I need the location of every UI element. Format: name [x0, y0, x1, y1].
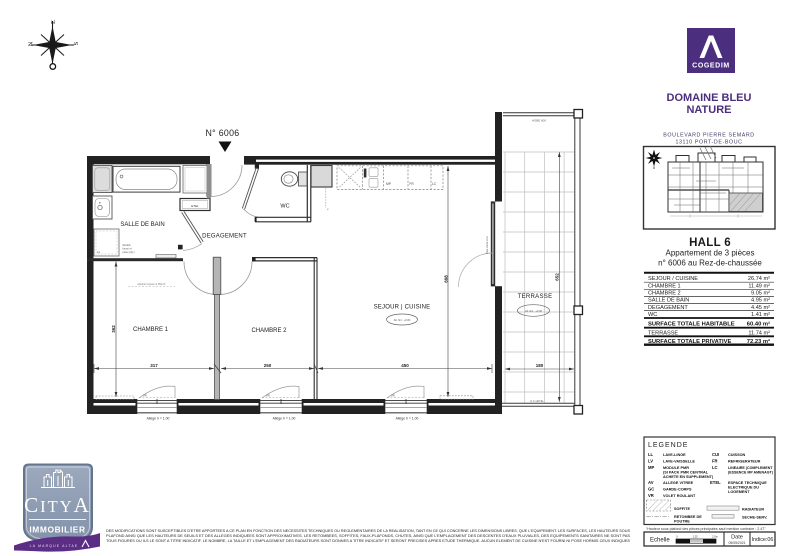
svg-text:ETEL: ETEL — [710, 480, 721, 485]
svg-text:11.49 m²: 11.49 m² — [748, 284, 770, 290]
svg-text:LL: LL — [648, 452, 654, 457]
svg-text:LOGEMENT: LOGEMENT — [728, 490, 750, 494]
svg-text:Allège h = 1.00: Allège h = 1.00 — [396, 417, 419, 421]
svg-text:LL: LL — [97, 250, 101, 254]
svg-text:GARDE-CORPS: GARDE-CORPS — [663, 488, 692, 492]
svg-text:LEGENDE: LEGENDE — [648, 442, 688, 449]
svg-text:DEGAGEMENT: DEGAGEMENT — [648, 305, 688, 311]
svg-text:SALLE DE BAIN: SALLE DE BAIN — [648, 298, 689, 304]
svg-text:MP: MP — [648, 465, 654, 470]
svg-text:Meuble: Meuble — [123, 244, 132, 247]
svg-text:VR: VR — [391, 394, 395, 398]
svg-text:N° 6006: N° 6006 — [206, 128, 240, 138]
svg-text:Meuble imposé si Plan lit: Meuble imposé si Plan lit — [138, 283, 166, 286]
svg-text:VR: VR — [266, 394, 270, 398]
svg-text:RETOMBEE DE: RETOMBEE DE — [674, 515, 702, 519]
svg-text:IMMOBILIER: IMMOBILIER — [29, 525, 85, 535]
svg-text:05/05/2021: 05/05/2021 — [729, 541, 746, 545]
svg-text:ESPACE TECHNIQUE: ESPACE TECHNIQUE — [728, 481, 767, 485]
svg-text:HSBE 600: HSBE 600 — [532, 119, 546, 123]
svg-text:REFRIGERATEUR: REFRIGERATEUR — [728, 460, 761, 464]
svg-text:PLAFOND AINSI QUE LES HAUTEURS: PLAFOND AINSI QUE LES HAUTEURS DE SEUILS… — [106, 534, 630, 538]
svg-text:SECHE-SERV.: SECHE-SERV. — [742, 516, 767, 520]
svg-text:Baie vitrée 2vtx: Baie vitrée 2vtx — [485, 235, 489, 253]
svg-text:VR: VR — [143, 394, 147, 398]
svg-text:317: 317 — [150, 363, 158, 368]
svg-text:(SI PACK PMR CENTRAL: (SI PACK PMR CENTRAL — [663, 471, 709, 475]
svg-text:“Hauteur sous plafond des pièc: “Hauteur sous plafond des pièces princip… — [646, 527, 766, 531]
svg-text:ELECTRIQUE DU: ELECTRIQUE DU — [728, 486, 759, 490]
svg-text:LC: LC — [712, 465, 718, 470]
svg-text:1.41 m²: 1.41 m² — [751, 312, 770, 318]
svg-text:CUI: CUI — [712, 452, 719, 457]
svg-text:TOUS FIGURES OU ILS LE SONT A: TOUS FIGURES OU ILS LE SONT A TITRE INDI… — [106, 539, 630, 543]
svg-text:1.25: 1.25 — [692, 535, 698, 539]
svg-text:CHAMBRE 1: CHAMBRE 1 — [133, 327, 169, 333]
svg-text:DES MODIFICATIONS SONT SUSCEPT: DES MODIFICATIONS SONT SUSCEPTIBLES D'ET… — [106, 529, 630, 533]
svg-text:DOMAINE BLEU: DOMAINE BLEU — [667, 92, 752, 104]
svg-text:HALL 6: HALL 6 — [689, 237, 731, 249]
svg-text:SOFFITE: SOFFITE — [674, 507, 690, 511]
svg-text:CITYA: CITYA — [24, 493, 91, 517]
svg-text:COGEDIM: COGEDIM — [692, 63, 730, 70]
svg-text:SURFACE TOTALE HABITABLE: SURFACE TOTALE HABITABLE — [648, 322, 735, 328]
svg-text:NATURE: NATURE — [686, 104, 731, 116]
svg-text:9.05 m²: 9.05 m² — [751, 291, 770, 297]
svg-text:LV: LV — [648, 459, 653, 464]
svg-text:posé (opt.): posé (opt.) — [123, 251, 135, 254]
svg-text:CUISSON: CUISSON — [728, 453, 746, 457]
svg-text:n° 6006 au Rez-de-chaussée: n° 6006 au Rez-de-chaussée — [658, 259, 762, 268]
svg-text:GC: GC — [648, 487, 654, 492]
svg-text:652: 652 — [554, 273, 559, 281]
svg-text:4.95 m²: 4.95 m² — [751, 298, 770, 304]
svg-text:Echelle: Echelle — [650, 538, 670, 544]
svg-text:SEJOUR | CUISINE: SEJOUR | CUISINE — [374, 305, 431, 311]
svg-text:MODULE PMR: MODULE PMR — [663, 466, 689, 470]
svg-text:LINEAIRE (COMPLEMENT: LINEAIRE (COMPLEMENT — [728, 466, 773, 470]
svg-text:FR: FR — [409, 182, 414, 186]
svg-text:Allège h = 1.00: Allège h = 1.00 — [273, 417, 296, 421]
svg-text:TERRASSE: TERRASSE — [648, 331, 678, 337]
svg-text:ALLEGE VITREE: ALLEGE VITREE — [663, 481, 694, 485]
svg-text:WC: WC — [648, 312, 657, 318]
svg-text:VR: VR — [648, 493, 654, 498]
svg-text:AV: AV — [648, 480, 654, 485]
svg-text:Alt. fini : +0.00: Alt. fini : +0.00 — [394, 318, 411, 322]
svg-text:Allège h = 1.00: Allège h = 1.00 — [147, 417, 170, 421]
svg-text:LAVE-VAISSELLE: LAVE-VAISSELLE — [663, 460, 695, 464]
svg-text:CHAMBRE 2: CHAMBRE 2 — [648, 291, 681, 297]
svg-text:FR: FR — [712, 459, 718, 464]
svg-text:WC: WC — [280, 204, 289, 210]
svg-text:CHAMBRE 1: CHAMBRE 1 — [648, 284, 681, 290]
svg-text:(ESSENCE MP AMENAGT): (ESSENCE MP AMENAGT) — [728, 471, 774, 475]
svg-text:Indice:06: Indice:06 — [752, 537, 774, 543]
svg-text:26.74 m²: 26.74 m² — [748, 276, 770, 282]
svg-text:SEJOUR / CUISINE: SEJOUR / CUISINE — [648, 276, 698, 282]
svg-text:608: 608 — [444, 275, 449, 283]
svg-text:Date: Date — [731, 535, 743, 541]
svg-text:180: 180 — [536, 363, 544, 368]
svg-text:13110 PORT-DE-BOUC: 13110 PORT-DE-BOUC — [675, 140, 742, 146]
svg-text:N: N — [28, 41, 35, 46]
svg-text:250: 250 — [264, 363, 272, 368]
svg-text:4.45 m²: 4.45 m² — [751, 305, 770, 311]
svg-text:MP: MP — [386, 182, 391, 186]
svg-text:Appartement de 3 pièces: Appartement de 3 pièces — [666, 249, 755, 258]
svg-text:BOULEVARD PIERRE SEMARD: BOULEVARD PIERRE SEMARD — [663, 133, 754, 139]
svg-text:LAVE-LINGE: LAVE-LINGE — [663, 453, 686, 457]
svg-text:VOLET ROULANT: VOLET ROULANT — [663, 494, 696, 498]
svg-text:2.5m: 2.5m — [712, 535, 718, 539]
svg-text:DEGAGEMENT: DEGAGEMENT — [202, 234, 247, 240]
svg-text:G.C s/ETEL: G.C s/ETEL — [530, 399, 544, 403]
svg-text:72.23 m²: 72.23 m² — [747, 338, 770, 345]
svg-text:CHAMBRE 2: CHAMBRE 2 — [251, 328, 287, 334]
svg-text:POUTRE: POUTRE — [674, 520, 690, 524]
svg-text:RADIATEUR: RADIATEUR — [742, 508, 764, 512]
svg-text:fourni et: fourni et — [123, 248, 132, 251]
svg-text:S: S — [73, 41, 80, 45]
svg-text:SALLE DE BAIN: SALLE DE BAIN — [120, 222, 164, 228]
svg-text:450: 450 — [401, 363, 409, 368]
svg-text:362: 362 — [111, 325, 116, 333]
svg-text:11.74 m²: 11.74 m² — [748, 331, 770, 337]
svg-text:Alt. Ext : +0.00: Alt. Ext : +0.00 — [525, 309, 542, 313]
svg-text:LC: LC — [432, 182, 437, 186]
svg-text:E: E — [50, 20, 57, 24]
svg-text:SURFACE TOTALE PRIVATIVE: SURFACE TOTALE PRIVATIVE — [648, 339, 731, 345]
svg-text:LA MARQUE ALTAE: LA MARQUE ALTAE — [30, 544, 79, 548]
svg-text:TERRASSE: TERRASSE — [518, 294, 553, 300]
svg-text:ETEL: ETEL — [191, 204, 199, 208]
svg-text:ACHETE EN SUPPLEMENT): ACHETE EN SUPPLEMENT) — [663, 475, 714, 479]
svg-text:60.40 m²: 60.40 m² — [747, 321, 770, 328]
